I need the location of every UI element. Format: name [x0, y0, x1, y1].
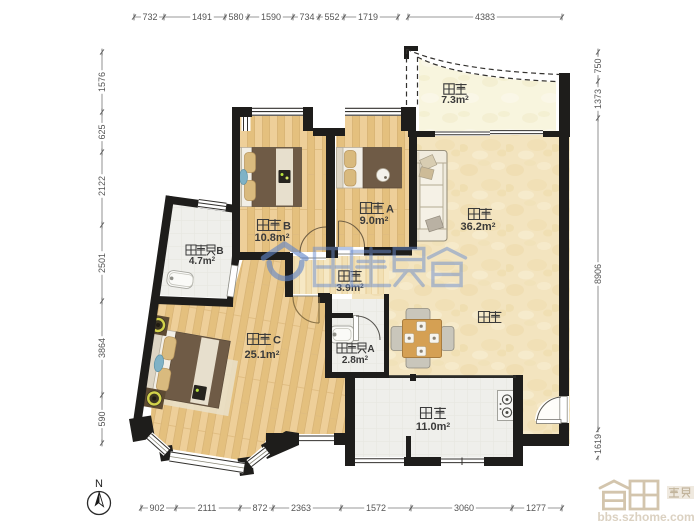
- svg-text:2111: 2111: [198, 503, 217, 513]
- svg-text:872: 872: [252, 503, 267, 513]
- svg-text:3864: 3864: [97, 338, 107, 358]
- svg-text:N: N: [95, 478, 103, 490]
- svg-text:C: C: [273, 335, 281, 347]
- svg-text:1619: 1619: [593, 434, 603, 454]
- svg-text:2.8m2: 2.8m2: [342, 355, 369, 366]
- svg-text:1590: 1590: [261, 12, 281, 22]
- svg-text:7.3m2: 7.3m2: [441, 94, 469, 106]
- svg-text:8906: 8906: [593, 264, 603, 284]
- svg-text:2122: 2122: [97, 176, 107, 196]
- svg-text:A: A: [367, 344, 374, 355]
- svg-text:590: 590: [97, 411, 107, 426]
- svg-text:750: 750: [593, 58, 603, 73]
- svg-text:580: 580: [228, 12, 243, 22]
- svg-text:3060: 3060: [454, 503, 474, 513]
- svg-text:1576: 1576: [97, 72, 107, 92]
- svg-text:25.1m2: 25.1m2: [245, 349, 280, 361]
- svg-text:2501: 2501: [97, 253, 107, 273]
- svg-text:1373: 1373: [593, 89, 603, 109]
- svg-text:552: 552: [324, 12, 339, 22]
- svg-text:625: 625: [97, 124, 107, 139]
- svg-text:1719: 1719: [358, 12, 378, 22]
- svg-text:bbs.szhome.com: bbs.szhome.com: [597, 510, 694, 524]
- svg-text:1491: 1491: [192, 12, 212, 22]
- svg-text:2363: 2363: [291, 503, 311, 513]
- svg-text:A: A: [386, 204, 394, 216]
- svg-text:1572: 1572: [366, 503, 386, 513]
- svg-text:B: B: [216, 246, 223, 257]
- svg-text:36.2m2: 36.2m2: [461, 221, 496, 233]
- svg-text:4.7m2: 4.7m2: [189, 256, 216, 267]
- svg-text:902: 902: [149, 503, 164, 513]
- svg-text:9.0m2: 9.0m2: [360, 215, 389, 227]
- svg-text:732: 732: [142, 12, 157, 22]
- svg-text:B: B: [283, 221, 291, 233]
- svg-text:734: 734: [299, 12, 314, 22]
- svg-text:1277: 1277: [526, 503, 546, 513]
- svg-text:11.0m2: 11.0m2: [416, 421, 451, 433]
- svg-text:4383: 4383: [475, 12, 495, 22]
